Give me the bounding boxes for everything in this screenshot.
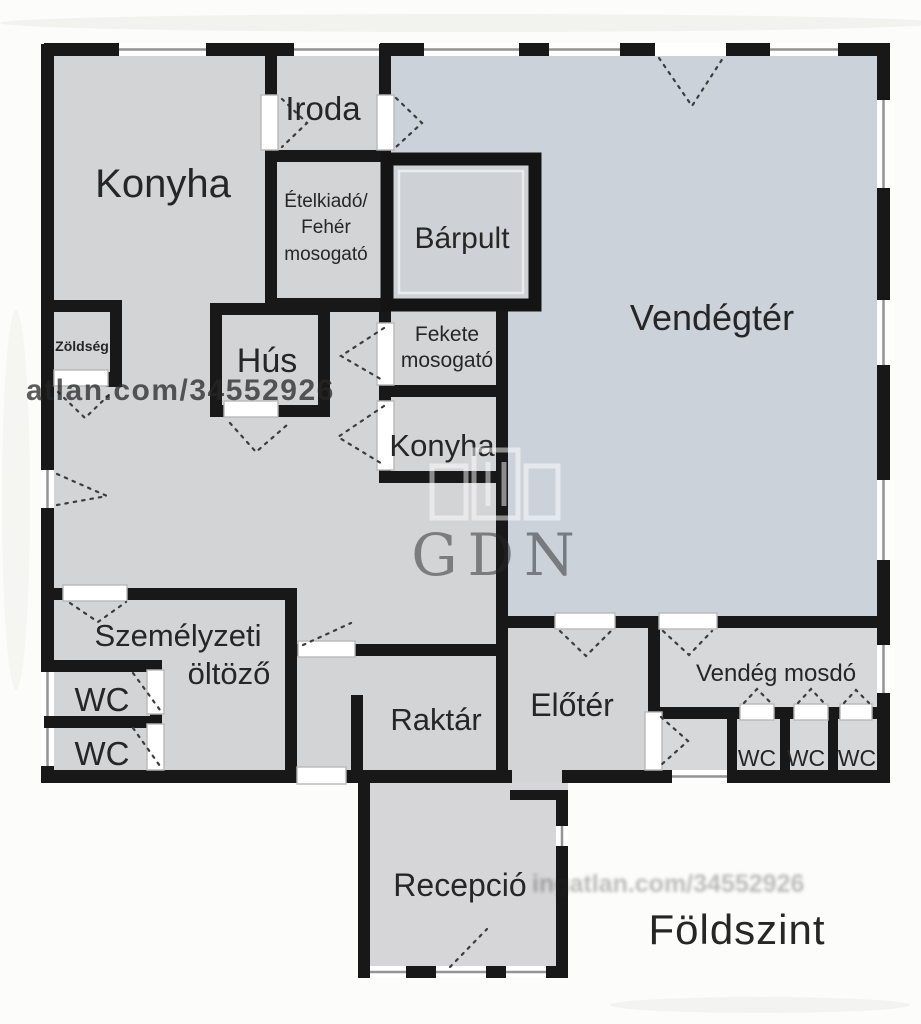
floor-title: Földszint	[648, 906, 825, 953]
room-label-eloter: Előtér	[530, 687, 614, 723]
watermark-faint-url: ingatlan.com/34552926	[532, 870, 804, 898]
room-label-iroda: Iroda	[285, 90, 361, 127]
room-label-fekete-line2: mosogató	[401, 349, 493, 372]
floor-plan-page: Konyha Iroda Ételkiadó/ Fehér mosogató B…	[0, 0, 921, 1024]
room-label-wc-staff-1: WC	[75, 681, 130, 718]
room-label-wc-guest-2: WC	[787, 745, 825, 771]
watermark-brand: GDN	[411, 521, 585, 589]
room-label-fekete-line1: Fekete	[415, 323, 479, 346]
room-label-barpult: Bárpult	[414, 222, 510, 255]
room-label-wc-staff-2: WC	[75, 735, 130, 772]
room-label-wc-guest-1: WC	[738, 745, 776, 771]
watermark-listing-url: atlan.com/34552926	[26, 374, 335, 407]
room-label-vendegter: Vendégtér	[630, 297, 794, 338]
room-label-recepcio: Recepció	[393, 867, 526, 903]
room-label-wc-guest-3: WC	[838, 745, 876, 771]
room-label-etelkiado-line2: Fehér	[301, 217, 351, 238]
room-label-etelkiado-line1: Ételkiadó/	[284, 191, 368, 212]
room-label-raktar: Raktár	[390, 702, 481, 737]
room-label-zoldseg: Zöldség	[55, 338, 109, 354]
room-label-konyha-small: Konyha	[389, 428, 495, 463]
room-label-szemelyzeti-line2: öltöző	[188, 656, 271, 691]
room-label-etelkiado-line3: mosogató	[284, 244, 367, 265]
room-label-vendeg-mosdo: Vendég mosdó	[696, 660, 856, 687]
floor-plan: Konyha Iroda Ételkiadó/ Fehér mosogató B…	[0, 0, 921, 1024]
room-label-konyha-main: Konyha	[95, 162, 231, 206]
room-label-szemelyzeti-line1: Személyzeti	[94, 618, 261, 653]
